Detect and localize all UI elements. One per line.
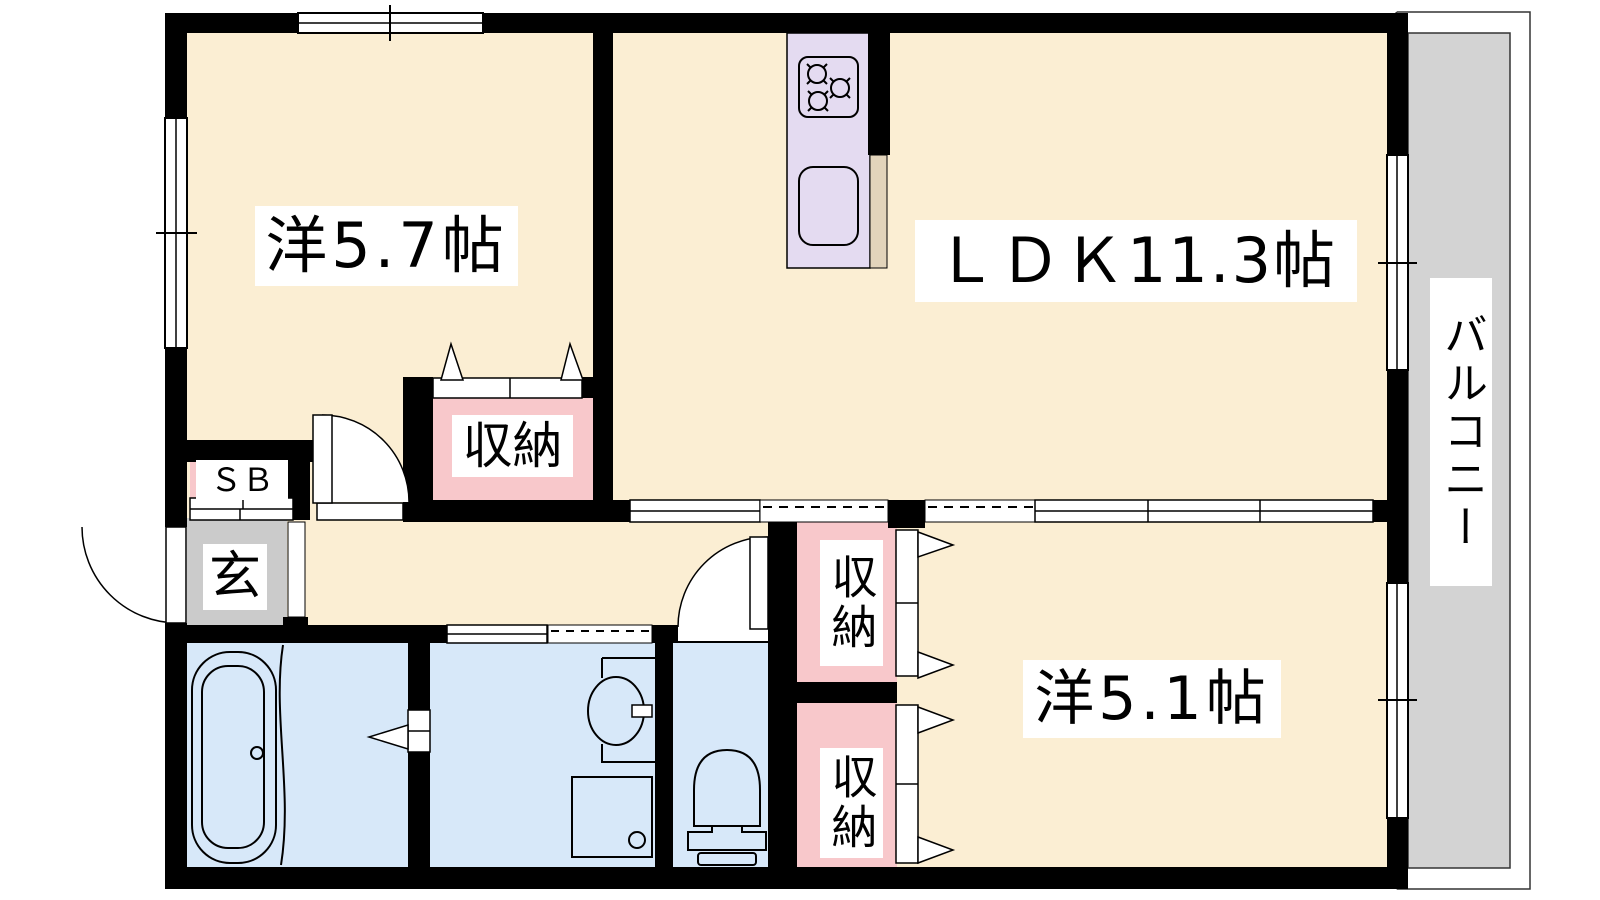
entrance-door	[82, 527, 186, 623]
label-closet-room1: 収納	[452, 415, 573, 477]
kitchen-counter	[870, 155, 887, 268]
opening-dashed-1	[760, 500, 888, 522]
label-genkan: 玄	[203, 544, 267, 610]
opening-dashed-2	[925, 500, 1035, 522]
room-label-western-5-1: 洋5.1帖	[1023, 660, 1281, 738]
bathroom-floor	[187, 643, 408, 867]
slider-ldk-hall	[630, 500, 760, 522]
slider-washroom	[447, 625, 652, 643]
floorplan: 洋5.7帖 ＬＤＫ11.3帖 洋5.1帖 バルコニー 玄 ＳＢ 収納 収納 収納	[0, 0, 1600, 900]
label-closet-lower: 収納	[820, 748, 883, 858]
slider-ldk-room2	[1035, 500, 1373, 522]
label-shoe-box: ＳＢ	[196, 460, 288, 500]
room-label-balcony: バルコニー	[1430, 278, 1492, 586]
floorplan-drawing	[0, 0, 1600, 900]
room-label-western-5-7: 洋5.7帖	[255, 206, 518, 286]
shoe-box-doors	[190, 498, 293, 520]
label-closet-upper: 収納	[820, 540, 883, 666]
room-label-ldk: ＬＤＫ11.3帖	[915, 220, 1357, 302]
